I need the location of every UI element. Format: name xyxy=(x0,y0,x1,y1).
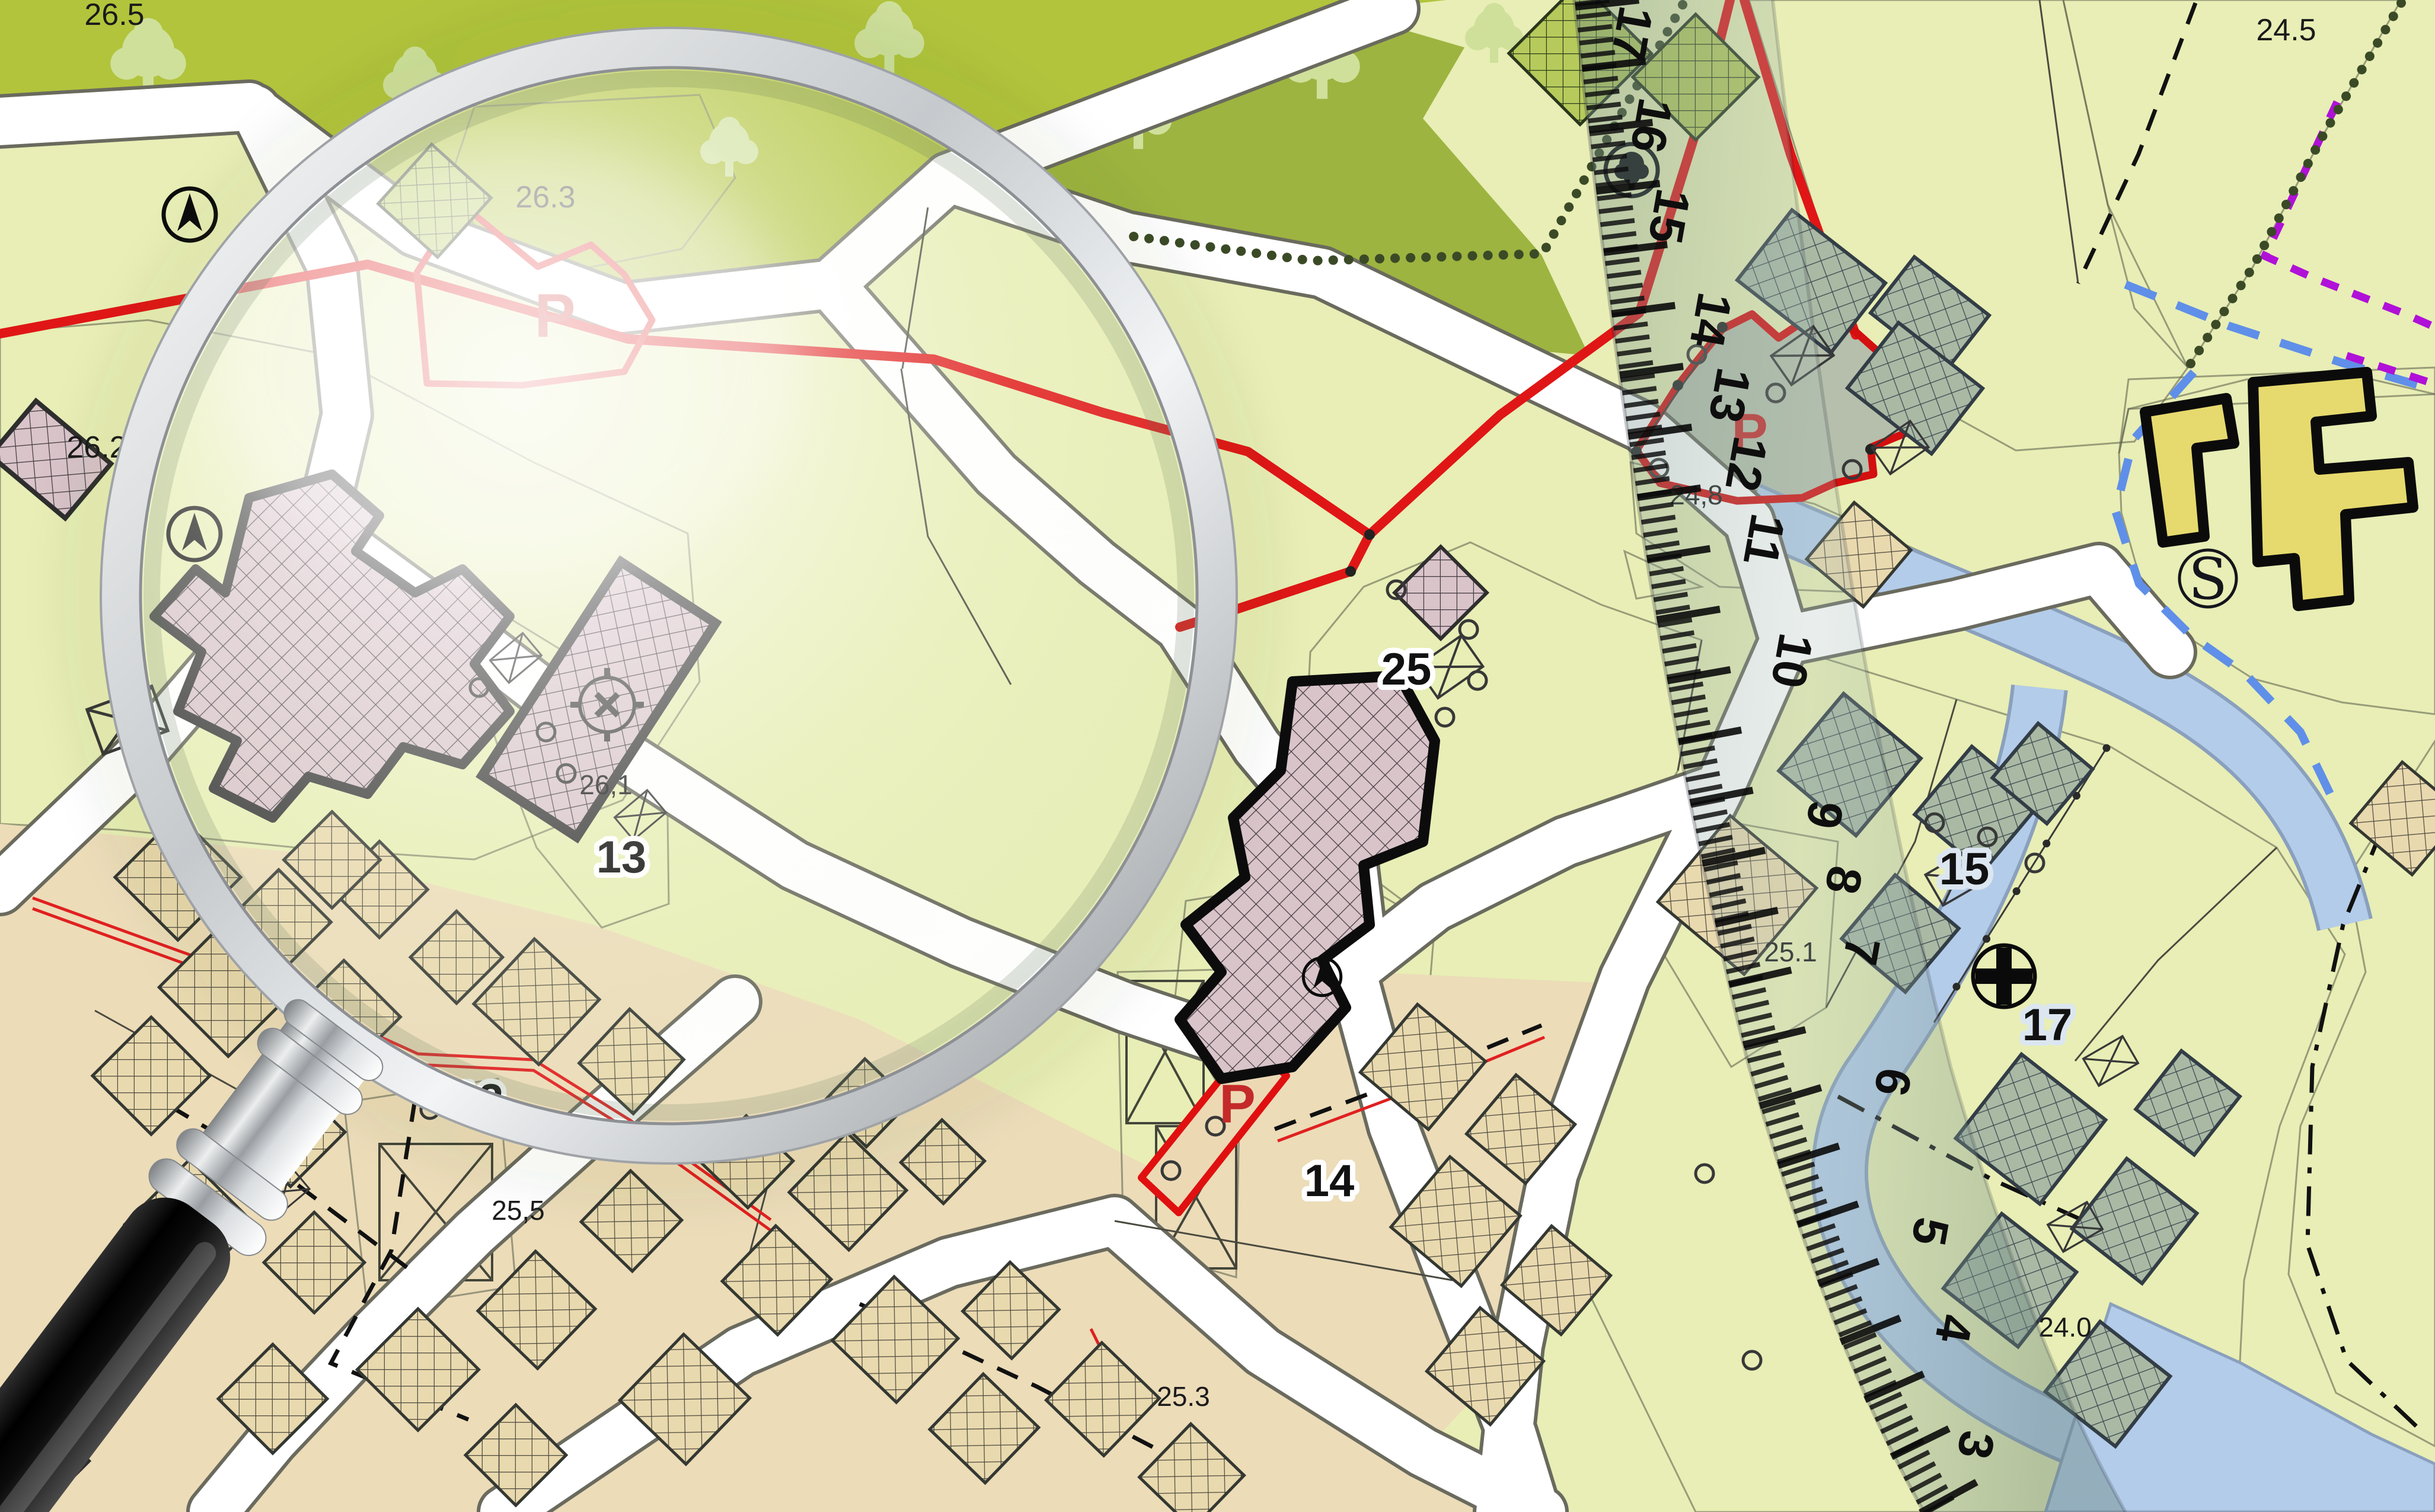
ruler-number-10: 10 xyxy=(1760,629,1823,692)
zone-label-25: 25 xyxy=(1381,644,1432,695)
parking-label-bottom: P xyxy=(1219,1074,1255,1134)
parcel-label-26-5: 26.5 xyxy=(84,0,144,32)
zone-label-15: 15 xyxy=(1939,844,1990,894)
parcel-label-24-5: 24.5 xyxy=(2256,13,2316,47)
ruler-number-16: 16 xyxy=(1620,94,1682,157)
ruler-number-13: 13 xyxy=(1698,364,1760,427)
ruler-number-15: 15 xyxy=(1638,185,1700,248)
cadastral-map-photo: S 26.5 26.3 26.2 26,1 25,5 25.3 25.1 24,… xyxy=(0,0,2435,1512)
ruler-number-11: 11 xyxy=(1733,510,1795,570)
zone-label-17: 17 xyxy=(2022,1000,2073,1050)
church-cross-icon xyxy=(1973,945,2035,1007)
ruler-number-17: 17 xyxy=(1600,2,1662,65)
school-label: S xyxy=(2188,546,2227,612)
zone-label-14: 14 xyxy=(1304,1156,1355,1206)
parcel-label-24-0: 24.0 xyxy=(2038,1312,2092,1342)
parcel-label-25-5: 25,5 xyxy=(492,1195,545,1226)
ruler-number-12: 12 xyxy=(1715,433,1777,496)
parcel-label-25-3: 25.3 xyxy=(1157,1381,1210,1412)
ruler-number-14: 14 xyxy=(1679,289,1742,351)
